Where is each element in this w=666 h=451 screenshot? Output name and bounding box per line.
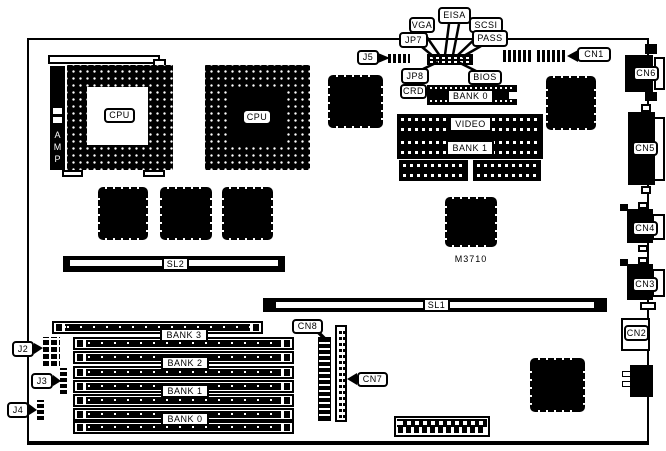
bios-label: BIOS: [473, 73, 497, 82]
cn5-tab-bottom: [641, 186, 651, 194]
bank1-label-box: BANK 1: [161, 384, 209, 398]
bank0-label: BANK 0: [167, 415, 202, 424]
jp7-label: JP7: [405, 36, 422, 45]
cn3-label-box: CN3: [632, 277, 658, 292]
j5-label-box: J5: [357, 50, 379, 65]
motherboard-diagram: AMP CPU CPU M3710 SL2 SL1 EISA VGA SCSI: [0, 0, 666, 451]
bank1-ram-label-box: BANK 1: [446, 140, 494, 156]
bank0-cache-label: BANK 0: [453, 92, 488, 101]
cn1-label-box: CN1: [577, 47, 611, 62]
amp-bar-notch-1: [53, 108, 62, 114]
sl2-label-box: SL2: [162, 257, 189, 271]
j2-label-box: J2: [12, 341, 34, 357]
j3-label: J3: [37, 377, 48, 386]
vga-label: VGA: [412, 21, 433, 30]
cn4-tab-bottom: [638, 245, 648, 252]
cn5-tab-top: [641, 104, 651, 112]
sl1-label: SL1: [428, 301, 446, 310]
bank0-label-box: BANK 0: [161, 412, 209, 426]
bank3-label-box: BANK 3: [160, 328, 208, 342]
cn8-label-box: CN8: [292, 319, 323, 334]
cn6-label-box: CN6: [633, 66, 659, 81]
jp7-label-box: JP7: [399, 32, 428, 48]
cn2-label-box: CN2: [624, 325, 649, 341]
bank0-cache-label-box: BANK 0: [447, 89, 494, 104]
jp8-label: JP8: [406, 72, 423, 81]
pass-label-box: PASS: [472, 30, 508, 47]
bank3-label: BANK 3: [166, 331, 201, 340]
cn3-tab-bottom: [640, 302, 656, 310]
cn6-nub-top: [645, 44, 657, 54]
cn8-label: CN8: [298, 322, 318, 331]
cn4-nub-top: [620, 204, 628, 211]
j4-label-box: J4: [7, 402, 29, 418]
scsi-label: SCSI: [474, 21, 497, 30]
cn3-label: CN3: [635, 280, 655, 289]
bank2-label: BANK 2: [167, 359, 202, 368]
cn3-tab-top: [638, 257, 648, 264]
j5-label: J5: [363, 53, 374, 62]
jp8-label-box: JP8: [401, 68, 429, 84]
video-label: VIDEO: [455, 120, 486, 129]
cn6-label: CN6: [636, 69, 656, 78]
bank1-label: BANK 1: [167, 387, 202, 396]
cpu1-label-box: CPU: [104, 108, 135, 123]
sl1-label-box: SL1: [423, 298, 450, 312]
cn5-label: CN5: [635, 144, 655, 153]
cn5-label-box: CN5: [632, 141, 658, 156]
crd-label: CRD: [403, 87, 424, 96]
crd-label-box: CRD: [400, 84, 427, 99]
bank2-label-box: BANK 2: [161, 356, 209, 370]
m3710-caption: M3710: [445, 255, 497, 264]
bios-label-box: BIOS: [468, 70, 502, 85]
cn4-tab-top: [638, 202, 648, 209]
eisa-label: EISA: [443, 11, 466, 20]
j4-label: J4: [13, 406, 24, 415]
j2-label: J2: [18, 345, 29, 354]
cn7-label-box: CN7: [357, 372, 388, 387]
eisa-label-box: EISA: [438, 7, 471, 24]
j3-label-box: J3: [31, 373, 53, 389]
cpu2-label: CPU: [247, 113, 268, 122]
cn4-label: CN4: [635, 224, 655, 233]
cn4-label-box: CN4: [632, 221, 658, 236]
vga-label-box: VGA: [409, 17, 435, 33]
callout-lines: [0, 0, 666, 451]
video-label-box: VIDEO: [449, 116, 492, 132]
keyboard-connector-notch-2: [622, 381, 631, 387]
bank1-ram-label: BANK 1: [452, 144, 487, 153]
cn3-nub-top: [620, 259, 628, 266]
sl2-label: SL2: [167, 260, 185, 269]
cpu2-label-box: CPU: [243, 110, 271, 124]
bank0-cache-notch: [509, 92, 517, 99]
keyboard-connector-notch-1: [622, 371, 631, 377]
cn7-label: CN7: [363, 375, 383, 384]
pass-label: PASS: [477, 34, 502, 43]
cn2-label: CN2: [627, 329, 647, 338]
amp-bar-notch-2: [53, 117, 62, 123]
cpu1-label: CPU: [109, 111, 130, 120]
cn6-nub-bottom: [645, 92, 657, 101]
cn1-label: CN1: [584, 50, 604, 59]
